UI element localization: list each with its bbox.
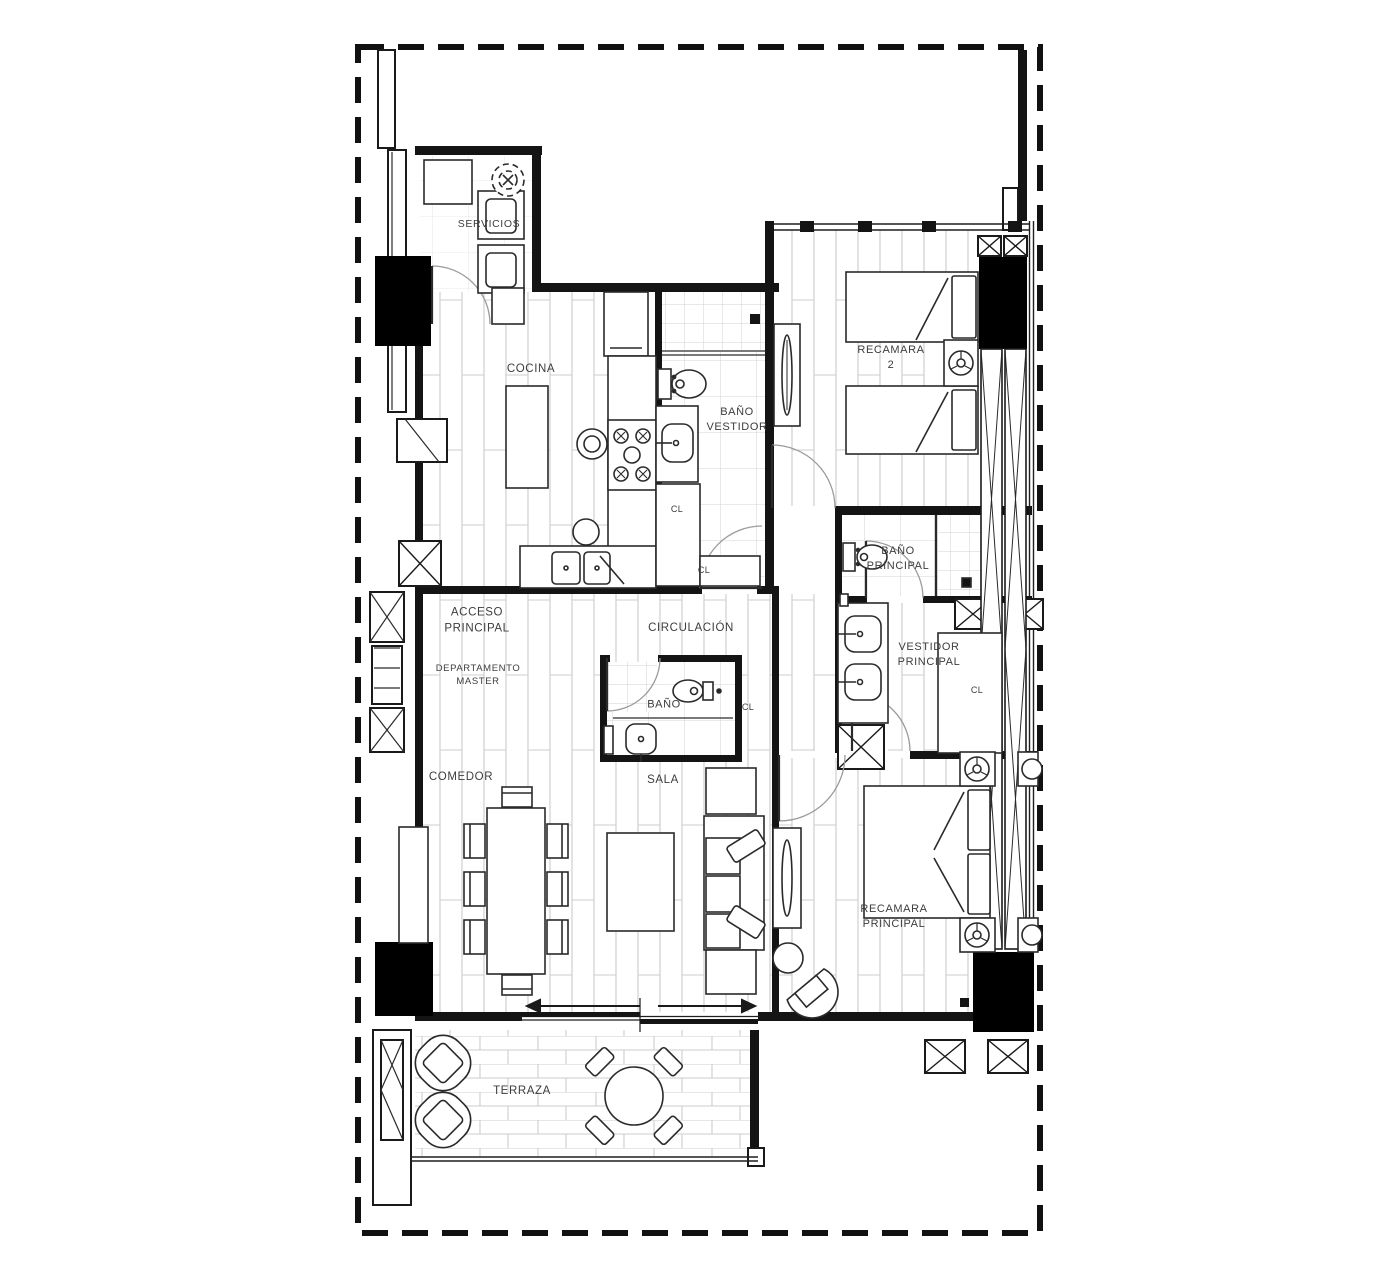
dining-table	[487, 808, 545, 974]
kitchen-island	[506, 386, 548, 488]
tv-console	[773, 828, 801, 928]
pot-small	[573, 519, 599, 545]
twin-bed-2	[846, 386, 978, 454]
label-circulacion: CIRCULACIÓN	[648, 621, 734, 637]
king-bed	[864, 786, 990, 918]
label-closet-3: CL	[742, 701, 754, 713]
kitchen-sink	[520, 546, 656, 588]
label-bano: BAÑO	[647, 698, 681, 713]
sofa	[704, 816, 766, 950]
refrigerator	[604, 292, 648, 356]
label-recamara-principal-line1: RECAMARA	[860, 902, 927, 917]
label-bano-vestidor-line1: BAÑO	[706, 405, 767, 420]
label-bano-vestidor-line2: VESTIDOR	[706, 420, 767, 435]
floor-plan-page: SERVICIOS COCINA BAÑO VESTIDOR RECAMARA …	[0, 0, 1400, 1280]
label-acceso-line1: ACCESO	[444, 605, 509, 621]
label-bano-vestidor: BAÑO VESTIDOR	[706, 405, 767, 435]
shower-drain	[962, 578, 971, 587]
stove	[608, 420, 656, 490]
label-vestidor-line1: VESTIDOR	[898, 640, 961, 655]
label-recamara-principal: RECAMARA PRINCIPAL	[860, 902, 927, 932]
console-table	[399, 827, 428, 943]
nightstand-top	[960, 752, 995, 786]
label-servicios: SERVICIOS	[458, 217, 520, 231]
label-recamara2: RECAMARA 2	[857, 343, 924, 373]
label-recamara-principal-line2: PRINCIPAL	[860, 917, 927, 932]
coffee-table	[607, 833, 674, 931]
nightstand	[944, 340, 978, 386]
label-bano-principal: BAÑO PRINCIPAL	[867, 544, 930, 574]
label-acceso-principal: ACCESO PRINCIPAL	[444, 605, 509, 636]
label-departamento-line1: DEPARTAMENTO	[436, 663, 521, 676]
label-sala: SALA	[647, 773, 679, 789]
label-closet-1: CL	[671, 503, 683, 515]
nightstand-bottom	[960, 918, 995, 952]
label-departamento-master: DEPARTAMENTO MASTER	[436, 663, 521, 689]
toilet	[658, 369, 706, 399]
tv-console	[774, 324, 800, 426]
label-recamara2-line1: RECAMARA	[857, 343, 924, 358]
label-bano-principal-line2: PRINCIPAL	[867, 559, 930, 574]
label-vestidor-line2: PRINCIPAL	[898, 655, 961, 670]
sink-vanity	[656, 406, 698, 482]
label-closet-2: CL	[698, 564, 710, 576]
floor-plan-drawing	[0, 0, 1400, 1280]
double-vanity	[838, 594, 888, 723]
label-terraza: TERRAZA	[493, 1084, 551, 1100]
side-table-bottom	[706, 950, 756, 994]
label-comedor: COMEDOR	[429, 770, 493, 786]
label-closet-4: CL	[971, 684, 983, 696]
bath-cabinet	[604, 726, 613, 754]
closet-cabinet	[656, 484, 700, 586]
twin-bed-1	[846, 272, 978, 342]
label-cocina: COCINA	[507, 362, 555, 378]
label-bano-principal-line1: BAÑO	[867, 544, 930, 559]
label-departamento-line2: MASTER	[436, 676, 521, 689]
label-vestidor-principal: VESTIDOR PRINCIPAL	[898, 640, 961, 670]
label-recamara2-line2: 2	[857, 358, 924, 373]
side-table-top	[706, 768, 756, 814]
label-acceso-line2: PRINCIPAL	[444, 621, 509, 637]
